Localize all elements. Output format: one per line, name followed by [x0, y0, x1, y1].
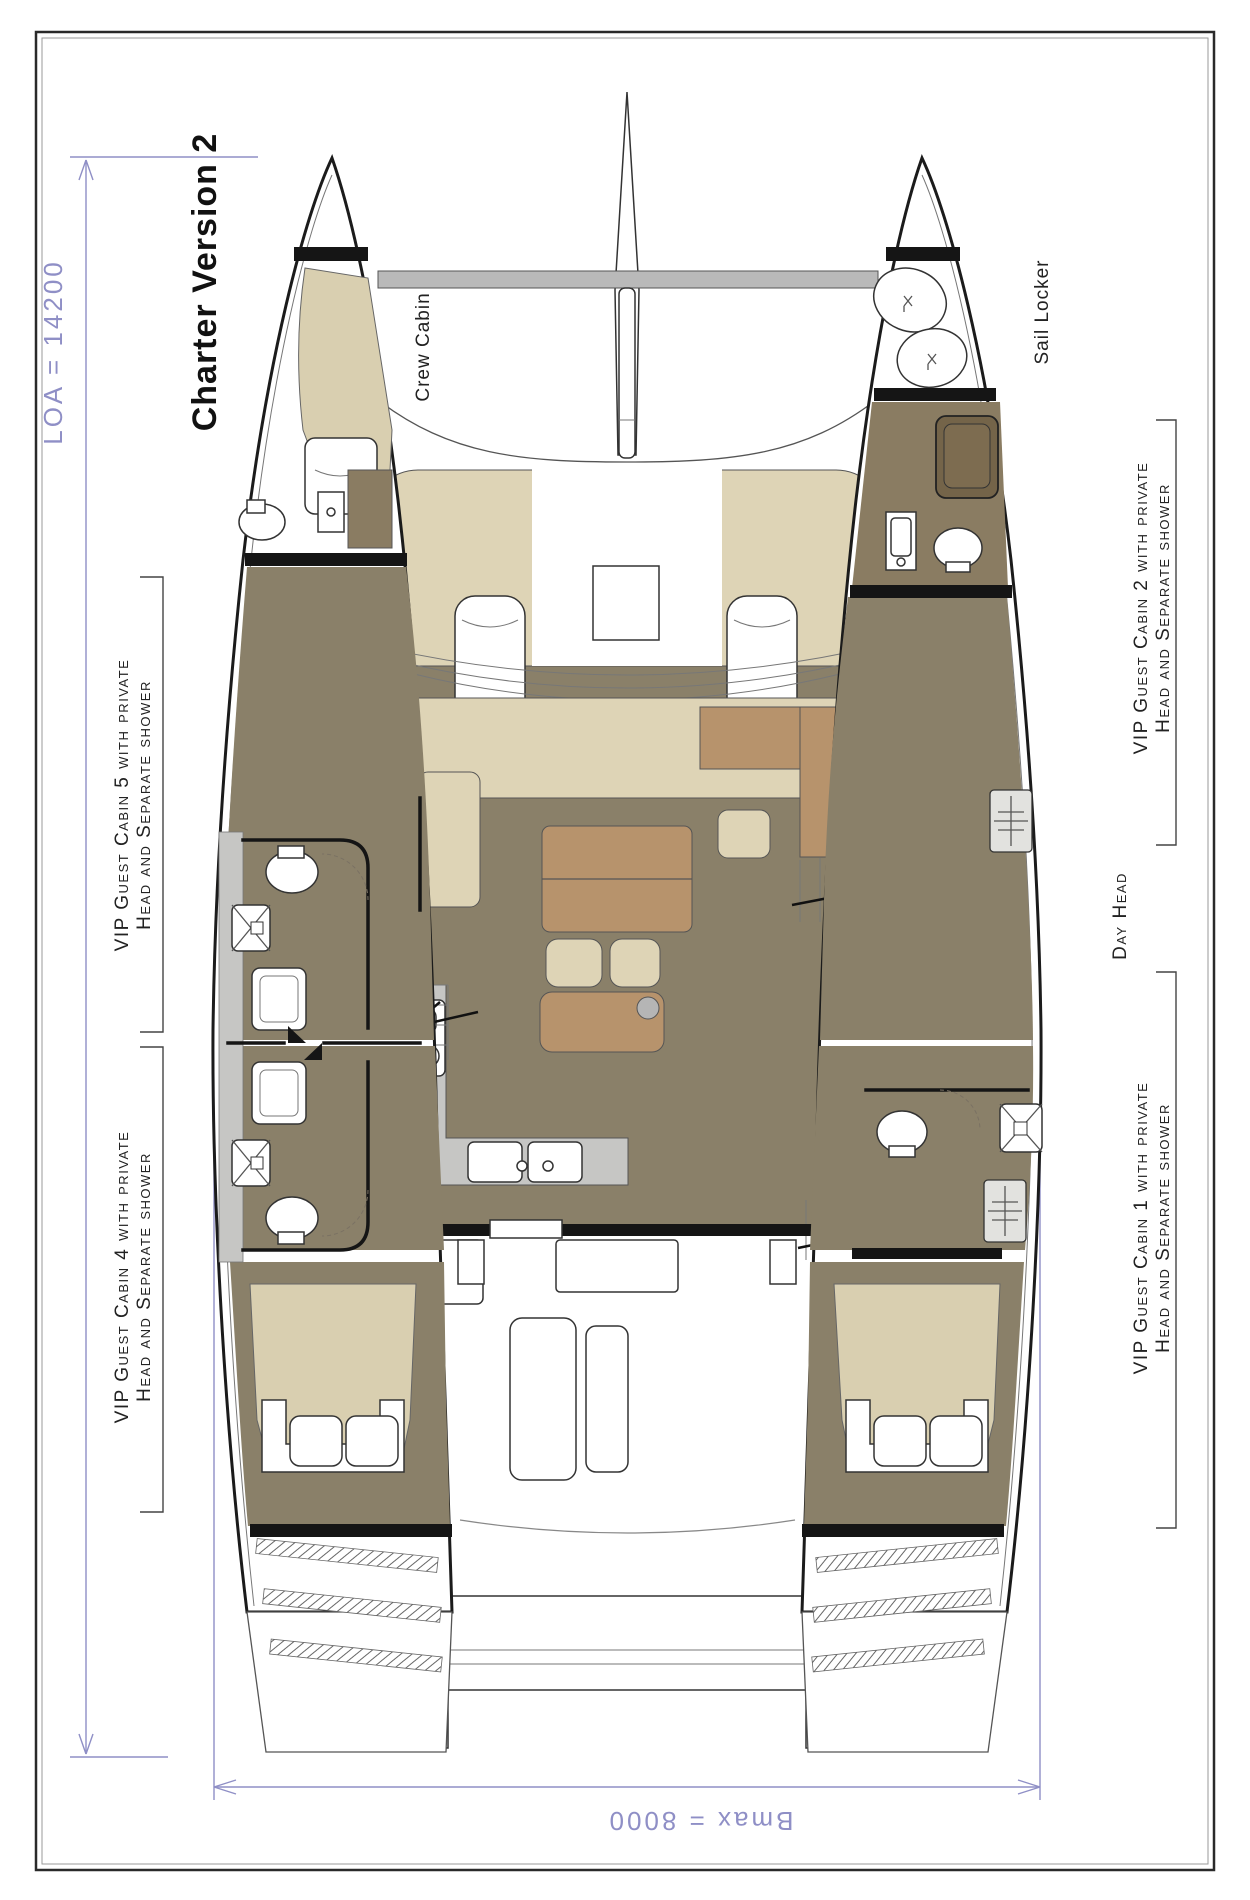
- cabin2-head-bulkhead: [850, 585, 1012, 598]
- port-bow-bulkhead: [294, 247, 368, 261]
- sail-locker-label: Sail Locker: [1032, 260, 1053, 365]
- cabin1-label-line2: Head and Separate shower: [1153, 1103, 1174, 1353]
- stool-2: [610, 939, 660, 987]
- crew-cabin-label: Crew Cabin: [413, 292, 434, 401]
- starboard-swim-steps: [802, 1612, 1007, 1752]
- port-side-locker: [219, 832, 243, 1262]
- crew-wardrobe: [348, 470, 392, 548]
- cockpit-module-center: [556, 1240, 678, 1292]
- bmax-label: Bmax = 8000: [607, 1806, 794, 1836]
- cabin2-annotation: VIP Guest Cabin 2 with private Head and …: [1131, 420, 1176, 845]
- cockpit-aft-seat: [460, 1520, 795, 1533]
- side-step-starboard: [770, 1240, 796, 1284]
- pillow-3: [874, 1416, 926, 1466]
- starboard-bow-bulkhead: [886, 247, 960, 261]
- cabin2-label-line1: VIP Guest Cabin 2 with private: [1131, 462, 1152, 755]
- pillow-4: [930, 1416, 982, 1466]
- table-pedestal: [637, 997, 659, 1019]
- pillow: [290, 1416, 342, 1466]
- cabin4-label-line2: Head and Separate shower: [134, 1152, 155, 1402]
- crew-aft-bulkhead: [245, 553, 407, 566]
- loa-label: LOA = 14200: [38, 259, 68, 445]
- sail-locker-bulkhead: [874, 388, 996, 401]
- cabin1-label-line1: VIP Guest Cabin 1 with private: [1131, 1082, 1152, 1375]
- cockpit-table: [510, 1318, 576, 1480]
- cockpit-bench: [586, 1326, 628, 1472]
- salon-sideboard: [700, 707, 800, 769]
- cabin4-annotation: VIP Guest Cabin 4 with private Head and …: [112, 1047, 163, 1512]
- stool-1: [546, 939, 602, 987]
- sliding-door: [490, 1220, 562, 1238]
- cabin4-label-line1: VIP Guest Cabin 4 with private: [112, 1131, 133, 1424]
- forward-crossbeam: [378, 271, 878, 288]
- side-table: [718, 810, 770, 858]
- sink-icon: [468, 1142, 522, 1182]
- cabin5-annotation: VIP Guest Cabin 5 with private Head and …: [112, 577, 163, 1032]
- day-head-label: Day Head: [1110, 872, 1131, 960]
- bowsprit-pole: [619, 288, 635, 458]
- forward-hatch: [593, 566, 659, 640]
- cabin2-label-line2: Head and Separate shower: [1153, 483, 1174, 733]
- cabin5-label-line2: Head and Separate shower: [134, 680, 155, 930]
- port-stern-bulkhead: [250, 1524, 452, 1537]
- starboard-hull: [802, 158, 1042, 1752]
- drawing-title: Charter Version 2: [186, 133, 224, 432]
- port-swim-steps: [247, 1612, 452, 1752]
- cabin5-floor: [221, 567, 434, 1040]
- starboard-stern-bulkhead: [802, 1524, 1004, 1537]
- floorplan-page: LOA = 14200 Bmax = 8000 Charter Version …: [0, 0, 1250, 1900]
- pillow-2: [346, 1416, 398, 1466]
- cabin5-label-line1: VIP Guest Cabin 5 with private: [112, 659, 133, 952]
- foredeck-structure: [378, 92, 878, 462]
- yacht-floorplan-drawing: LOA = 14200 Bmax = 8000 Charter Version …: [0, 0, 1250, 1900]
- side-step-port: [458, 1240, 484, 1284]
- cabin1-annotation: VIP Guest Cabin 1 with private Head and …: [1131, 972, 1176, 1528]
- sink-icon-2: [528, 1142, 582, 1182]
- swim-platform: [404, 1596, 850, 1748]
- starboard-mid-bulkhead: [852, 1248, 1002, 1259]
